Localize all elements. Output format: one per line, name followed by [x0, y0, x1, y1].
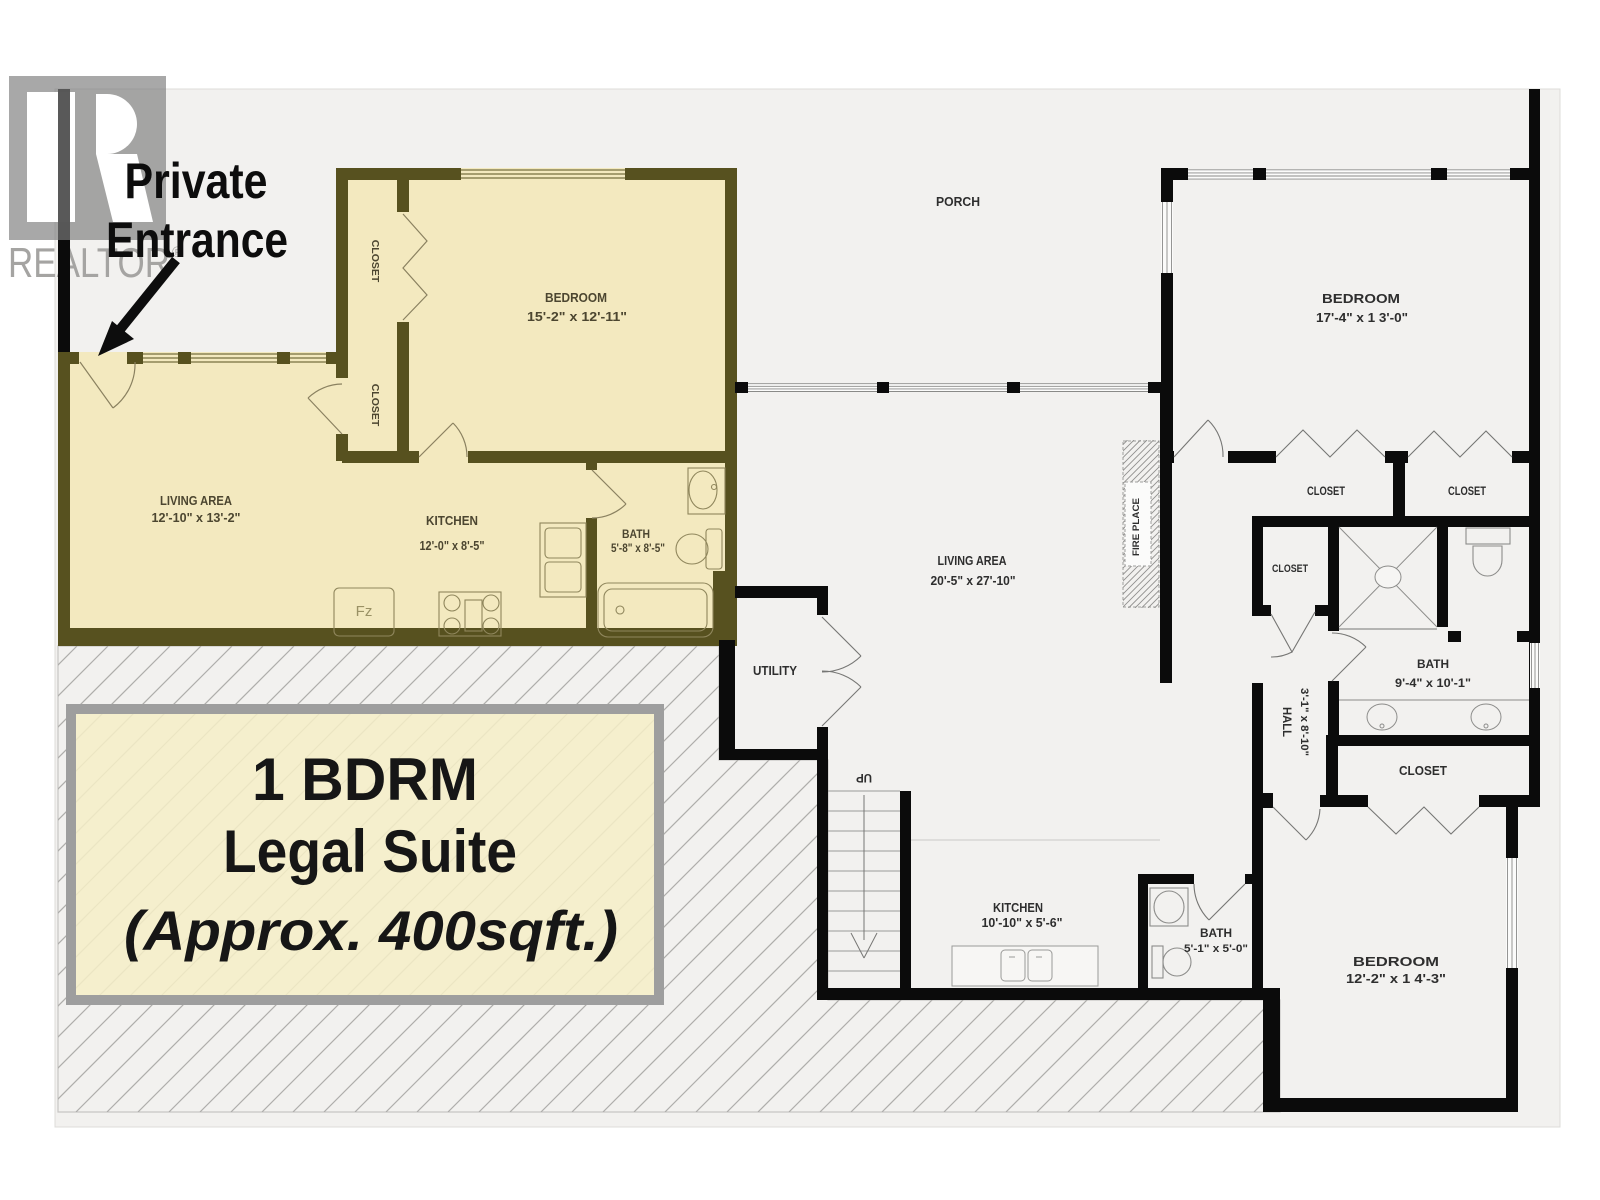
- svg-text:CLOSET: CLOSET: [1272, 563, 1308, 575]
- svg-text:LIVING AREA: LIVING AREA: [938, 553, 1007, 568]
- svg-text:17'-4" x 1 3'-0": 17'-4" x 1 3'-0": [1316, 311, 1408, 325]
- svg-text:CLOSET: CLOSET: [369, 240, 381, 283]
- svg-text:Private: Private: [125, 153, 268, 209]
- svg-text:FIRE PLACE: FIRE PLACE: [1131, 498, 1142, 556]
- svg-text:PORCH: PORCH: [936, 194, 980, 209]
- svg-text:Fz: Fz: [356, 603, 373, 620]
- svg-text:12'-10" x 13'-2": 12'-10" x 13'-2": [152, 511, 241, 525]
- svg-text:BEDROOM: BEDROOM: [1322, 291, 1400, 306]
- svg-text:HALL: HALL: [1280, 707, 1292, 737]
- svg-text:KITCHEN: KITCHEN: [993, 900, 1043, 915]
- svg-text:BATH: BATH: [1200, 928, 1232, 940]
- svg-text:KITCHEN: KITCHEN: [426, 513, 478, 528]
- svg-text:LIVING AREA: LIVING AREA: [160, 493, 233, 508]
- svg-text:CLOSET: CLOSET: [369, 384, 381, 427]
- svg-text:CLOSET: CLOSET: [1307, 486, 1345, 498]
- svg-text:BATH: BATH: [1417, 657, 1449, 671]
- svg-text:5'-8" x 8'-5": 5'-8" x 8'-5": [611, 543, 665, 555]
- svg-text:12'-0" x 8'-5": 12'-0" x 8'-5": [420, 539, 485, 553]
- svg-text:10'-10" x 5'-6": 10'-10" x 5'-6": [982, 916, 1063, 930]
- svg-text:Entrance: Entrance: [106, 212, 288, 268]
- svg-text:CLOSET: CLOSET: [1448, 486, 1486, 498]
- svg-text:9'-4" x 10'-1": 9'-4" x 10'-1": [1395, 678, 1471, 690]
- svg-text:12'-2" x 1 4'-3": 12'-2" x 1 4'-3": [1346, 972, 1446, 986]
- svg-text:20'-5" x 27'-10": 20'-5" x 27'-10": [931, 574, 1016, 588]
- svg-text:UP: UP: [856, 771, 872, 783]
- svg-text:UTILITY: UTILITY: [753, 664, 798, 678]
- svg-text:15'-2" x 12'-11": 15'-2" x 12'-11": [527, 310, 627, 324]
- svg-text:1 BDRM: 1 BDRM: [252, 746, 478, 813]
- svg-text:BATH: BATH: [622, 527, 650, 541]
- svg-text:BEDROOM: BEDROOM: [545, 290, 607, 305]
- svg-text:Legal Suite: Legal Suite: [223, 818, 517, 885]
- svg-text:BEDROOM: BEDROOM: [1353, 954, 1439, 969]
- svg-text:(Approx. 400sqft.): (Approx. 400sqft.): [124, 899, 618, 962]
- svg-text:5'-1" x 5'-0": 5'-1" x 5'-0": [1184, 943, 1248, 955]
- svg-text:CLOSET: CLOSET: [1399, 764, 1447, 778]
- svg-text:3'-1" x 8'-10": 3'-1" x 8'-10": [1298, 688, 1310, 756]
